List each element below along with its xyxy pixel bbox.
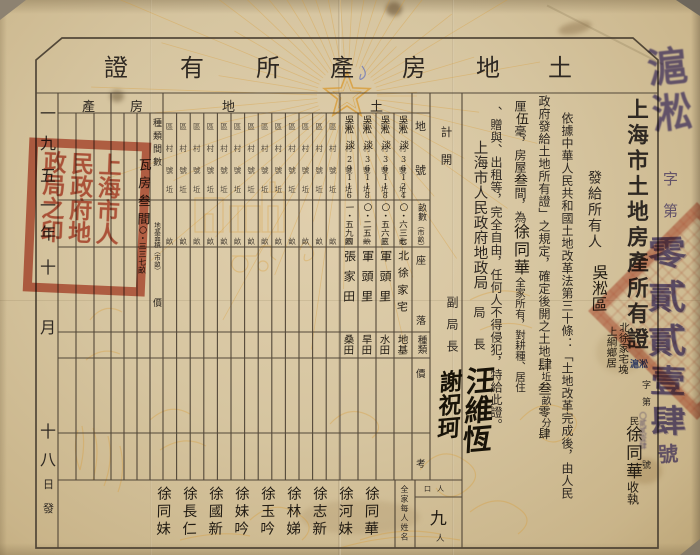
- body2-unit: 分: [539, 418, 550, 428]
- parcel-map-no: 29: [345, 155, 353, 173]
- column-template-char: 號: [179, 165, 187, 176]
- issued-to-label: 發給所有人: [587, 170, 601, 250]
- parcel-column: 吳淞 淡 29 116 一・五九四 張家田 桑田: [340, 113, 358, 480]
- column-template-char: 坵: [234, 184, 242, 195]
- date-char-small: 發: [43, 500, 54, 516]
- column-template-char: 村: [315, 143, 323, 154]
- body3-printed: 全家所有，對耕種、居住: [514, 277, 526, 393]
- column-template-char: 村: [247, 143, 255, 154]
- column-template-char: 區: [261, 121, 269, 132]
- date-char-small: 日: [43, 476, 54, 492]
- column-template-char: 號: [207, 165, 215, 176]
- column-template-char: 區: [220, 121, 228, 132]
- title-char: 土: [548, 48, 572, 83]
- certificate-document: 證 有 所 產 房 地 土 一 九 五 一 年 十 月 十 八 日 發 產 房 …: [0, 0, 700, 555]
- edge-serial-hao: 號: [657, 437, 678, 467]
- issued-to-min: 民: [628, 416, 639, 426]
- family-member-name: 徐同華: [362, 486, 378, 539]
- date-char: 月: [40, 314, 56, 338]
- family-member-name: 徐長仁: [180, 486, 196, 539]
- government-seal-text: 上海市人民政府地政局之印: [35, 150, 122, 263]
- column-template-char: 號: [329, 165, 337, 176]
- parcel-district: 吳淞: [397, 115, 407, 134]
- director-label: 局長: [473, 306, 485, 370]
- row-label-zhonglei: 種類: [416, 335, 426, 354]
- body3-hand: 叁: [512, 173, 528, 187]
- parcel-location: 軍頭里: [378, 250, 392, 310]
- parcel-location: 張家田: [342, 250, 356, 310]
- column-template-char: 坵: [207, 184, 215, 195]
- column-template-char: 村: [234, 143, 242, 154]
- body2-num: 零: [537, 406, 551, 418]
- parcel-map-no: 36: [381, 155, 389, 173]
- column-template-char: 區: [288, 121, 296, 132]
- column-template-char: 坵: [302, 184, 310, 195]
- column-template-mu-char: 畝: [234, 236, 242, 247]
- parcel-mu: 〇・二五一: [361, 203, 371, 246]
- parcel-column: 吳淞 淡 36 124 〇・六三七 北徐家宅 地基: [394, 113, 412, 480]
- body3-printed: 毫，房屋: [513, 125, 527, 173]
- column-template-char: 號: [275, 165, 283, 176]
- body2-num: 肆: [537, 428, 551, 440]
- column-template-char: 區: [275, 121, 283, 132]
- parcel-map-no: 36: [363, 155, 371, 173]
- family-member-name: 徐河妹: [336, 486, 352, 539]
- parcel-district: 吳淞: [343, 115, 353, 134]
- parcel-location: 北徐家宅: [396, 250, 409, 318]
- body-column-4: 、贈與、出租等，完全自由，任何人不得侵犯，特給此證。: [490, 106, 502, 536]
- parcel-kind: 地基: [397, 334, 408, 355]
- receipt-chars: 收執: [626, 481, 640, 505]
- house-jia-label: 價: [153, 296, 162, 309]
- column-template-char: 坵: [261, 184, 269, 195]
- edge-serial-zi: 字: [663, 168, 678, 189]
- column-template-char: 號: [234, 165, 242, 176]
- family-member-name: 徐國新: [206, 486, 222, 539]
- column-template-char: 坵: [220, 184, 228, 195]
- government-seal: 上海市人民政府地政局之印: [23, 137, 152, 296]
- row-label-mu: 畝數: [416, 203, 425, 221]
- parcel-location: 軍頭里: [360, 250, 374, 310]
- column-template-char: 坵: [193, 184, 201, 195]
- parcel-kind: 桑田: [343, 334, 354, 355]
- house-type-label: 種類間數: [151, 118, 160, 170]
- family-member-name: 徐林娣: [284, 486, 300, 539]
- column-template-char: 號: [220, 165, 228, 176]
- column-template-char: 坵: [166, 184, 174, 195]
- body2-unit: 坵: [539, 372, 550, 382]
- body-column-1: 依據中華人民共和國土地改革法第三十條：「土地改革完成後，由人民: [561, 112, 573, 542]
- body2-num: 叁: [536, 382, 552, 396]
- owner-name: 徐同華: [624, 426, 643, 482]
- row-label-mu-unit: （市畝）: [417, 222, 424, 250]
- column-template-char: 坵: [288, 184, 296, 195]
- parcel-mu: 一・五九四: [343, 203, 353, 246]
- title-char: 證: [104, 48, 128, 83]
- population-label: 人口: [424, 484, 450, 494]
- parcel-mu: 〇・五六三: [379, 203, 389, 246]
- parcel-village: 淡: [362, 140, 372, 150]
- column-template-char: 村: [193, 143, 201, 154]
- column-template-char: 村: [207, 143, 215, 154]
- parcel-no: 118: [381, 173, 390, 200]
- column-template-char: 區: [315, 121, 323, 132]
- section-header-fang: 房: [130, 96, 143, 115]
- parcel-column: 吳淞 淡 36 118 〇・五六三 軍頭里 水田: [376, 113, 394, 480]
- column-template-mu-char: 畝: [329, 236, 337, 247]
- edge-serial-di: 第: [663, 200, 678, 221]
- family-member-name: 徐妹吟: [232, 486, 248, 539]
- body-column-3: 厘伍毫，房屋叁間，為徐同華全家所有，對耕種、居住: [512, 100, 528, 540]
- title-char: 地: [476, 48, 500, 83]
- row-label-dihao: 地: [415, 118, 426, 134]
- serial-zi: 字: [640, 380, 649, 389]
- body3-hand: 伍: [513, 112, 528, 125]
- column-template-char: 區: [166, 121, 174, 132]
- column-template-char: 號: [315, 165, 323, 176]
- title-char: 有: [180, 48, 204, 83]
- column-template-mu-char: 畝: [207, 236, 215, 247]
- parcel-village: 淡: [380, 140, 390, 150]
- column-template-mu-char: 畝: [288, 236, 296, 247]
- family-names-label: 全家每人姓名: [400, 485, 408, 542]
- parcel-district: 吳淞: [379, 115, 389, 134]
- body2-num: 肆: [536, 358, 552, 372]
- parcel-no: 116: [345, 173, 354, 200]
- date-char: 一: [40, 100, 56, 124]
- date-char: 八: [40, 446, 56, 470]
- column-template-char: 區: [179, 121, 187, 132]
- title-char: 所: [256, 48, 280, 83]
- column-template-char: 區: [302, 121, 310, 132]
- column-template-char: 號: [166, 165, 174, 176]
- parcel-mu: 〇・六三七: [397, 203, 407, 246]
- parcel-district: 吳淞: [361, 115, 371, 134]
- column-template-char: 村: [166, 143, 174, 154]
- issued-to-name: 民徐同華收執: [624, 416, 641, 505]
- parcel-kind: 水田: [379, 334, 390, 355]
- column-template-mu-char: 畝: [302, 236, 310, 247]
- body3-printed: 厘: [513, 100, 527, 112]
- column-template-mu-char: 畝: [275, 236, 283, 247]
- agency-name: 上海市人民政府地政局: [472, 140, 487, 290]
- body2-unit: 畝: [539, 396, 550, 406]
- row-label-zuoluo: 落: [416, 312, 426, 327]
- column-template-char: 區: [329, 121, 337, 132]
- house-area-label: 地基面積（市畝）: [153, 222, 160, 274]
- deputy-director-label: 副局長: [446, 296, 458, 362]
- column-template-char: 區: [234, 121, 242, 132]
- column-template-mu-char: 畝: [315, 236, 323, 247]
- column-template-char: 村: [220, 143, 228, 154]
- column-template-mu-char: 畝: [193, 236, 201, 247]
- parcel-village: 淡: [344, 140, 354, 150]
- body-column-2: 政府發給土地所有證」之規定，確定後開之土地肆坵叁畝零分肆: [536, 95, 552, 535]
- body2-printed: 政府發給土地所有證」之規定，確定後開之土地: [537, 95, 551, 358]
- edge-serial-digit: 零: [647, 226, 687, 275]
- column-template-char: 村: [302, 143, 310, 154]
- column-template-char: 坵: [179, 184, 187, 195]
- ji-kai-label: 計開: [440, 126, 452, 181]
- column-template-char: 坵: [247, 184, 255, 195]
- population-count: 九: [430, 504, 448, 529]
- column-template-char: 坵: [329, 184, 337, 195]
- column-template-mu-char: 畝: [179, 236, 187, 247]
- column-template-char: 號: [302, 165, 310, 176]
- column-template-char: 村: [261, 143, 269, 154]
- family-member-name: 徐同妹: [154, 486, 170, 539]
- column-template-char: 區: [247, 121, 255, 132]
- column-template-char: 號: [193, 165, 201, 176]
- date-char: 十: [40, 418, 56, 442]
- parcel-no: 118: [363, 173, 372, 200]
- parcel-village: 淡: [398, 140, 408, 150]
- parcel-kind: 旱田: [361, 334, 372, 355]
- edge-serial-prefix: 滬淞: [641, 44, 690, 140]
- family-member-name: 徐玉吟: [258, 486, 274, 539]
- column-template-char: 區: [193, 121, 201, 132]
- column-template-char: 坵: [275, 184, 283, 195]
- family-member-name: 徐志新: [310, 486, 326, 539]
- column-template-char: 村: [288, 143, 296, 154]
- parcel-column: 吳淞 淡 36 118 〇・二五一 軍頭里 旱田: [358, 113, 376, 480]
- column-template-char: 區: [207, 121, 215, 132]
- row-label-dihao: 號: [415, 162, 426, 178]
- body3-owner: 徐同華: [511, 223, 530, 277]
- section-header-di: 地: [222, 96, 235, 115]
- column-template-char: 號: [288, 165, 296, 176]
- director-signature: 汪維恆: [460, 364, 493, 454]
- column-template-char: 坵: [315, 184, 323, 195]
- edge-serial-digit: 貳: [647, 270, 686, 319]
- column-template-mu-char: 畝: [166, 236, 174, 247]
- section-header-chan: 產: [82, 96, 95, 115]
- row-label-kao: 考: [416, 456, 426, 470]
- parcel-no: 124: [399, 173, 408, 200]
- serial-di: 第: [640, 397, 649, 406]
- population-unit: 人: [436, 532, 445, 544]
- column-template-char: 村: [179, 143, 187, 154]
- edge-serial-digit: 肆: [650, 396, 687, 442]
- column-template-char: 號: [261, 165, 269, 176]
- column-template-mu-char: 畝: [220, 236, 228, 247]
- title-char: 產: [330, 48, 354, 83]
- column-template-mu-char: 畝: [247, 236, 255, 247]
- column-template-char: 村: [329, 143, 337, 154]
- body3-printed: 間，為: [513, 187, 527, 223]
- row-label-zuoluo: 座: [416, 252, 426, 267]
- title-char: 房: [402, 48, 426, 83]
- column-template-char: 村: [275, 143, 283, 154]
- deputy-signature: 謝祝珂: [434, 369, 461, 441]
- column-template-char: 號: [247, 165, 255, 176]
- parcel-map-no: 36: [399, 155, 407, 173]
- row-label-jia: 價: [416, 366, 426, 380]
- column-template-mu-char: 畝: [261, 236, 269, 247]
